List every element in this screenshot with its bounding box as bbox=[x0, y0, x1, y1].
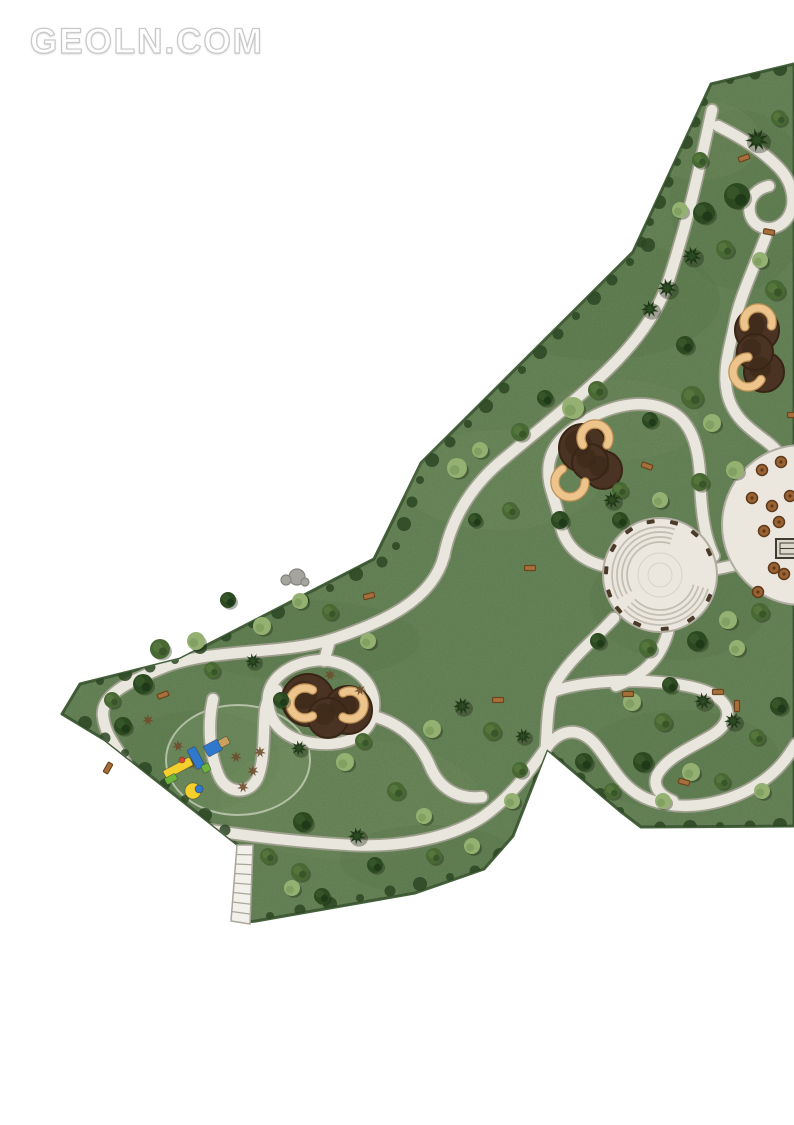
park-bench bbox=[623, 692, 634, 697]
park-bench bbox=[525, 566, 536, 571]
park-bench bbox=[735, 701, 740, 712]
tree bbox=[150, 639, 172, 661]
plaza-rim-bench bbox=[604, 566, 609, 574]
plaza-rim-bench bbox=[661, 626, 669, 631]
geoln-watermark: GEOLN.COM bbox=[30, 22, 264, 62]
park-bench bbox=[788, 413, 794, 418]
park-bench bbox=[493, 698, 504, 703]
park-bench bbox=[763, 229, 775, 236]
watermark-text: GEOLN.COM bbox=[30, 22, 264, 61]
kiosk bbox=[776, 539, 794, 558]
park-map-svg bbox=[0, 0, 794, 1125]
boulder-rock bbox=[281, 569, 309, 586]
tree bbox=[187, 632, 207, 652]
tree bbox=[220, 592, 238, 610]
park-bench bbox=[103, 762, 113, 774]
park-bench bbox=[713, 690, 724, 695]
central-plaza bbox=[603, 518, 717, 632]
site-plan-map: GEOLN.COM bbox=[0, 0, 794, 1125]
park-illustration bbox=[0, 0, 794, 1125]
walking-path bbox=[324, 640, 330, 661]
entrance-stairs bbox=[231, 845, 253, 924]
